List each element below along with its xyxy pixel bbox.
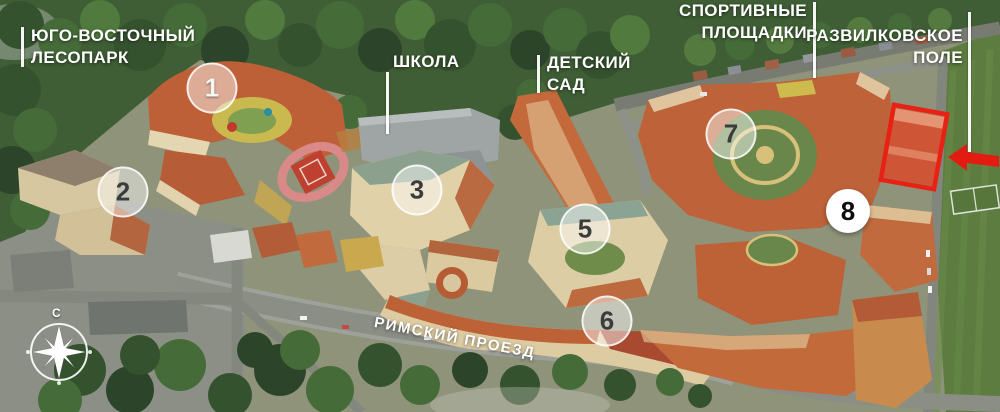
building-marker-7[interactable]: 7 <box>706 109 757 160</box>
building-marker-1[interactable]: 1 <box>187 63 238 114</box>
building-marker-8[interactable]: 8 <box>826 189 870 233</box>
building-marker-6[interactable]: 6 <box>582 296 633 347</box>
building-marker-5[interactable]: 5 <box>560 204 611 255</box>
masterplan-aerial-map: ЮГО-ВОСТОЧНЫЙ ЛЕСОПАРК ШКОЛА ДЕТСКИЙ САД… <box>0 0 1000 412</box>
building-marker-2[interactable]: 2 <box>98 167 149 218</box>
building-marker-3[interactable]: 3 <box>392 165 443 216</box>
highlighted-building-outline[interactable] <box>881 105 947 189</box>
